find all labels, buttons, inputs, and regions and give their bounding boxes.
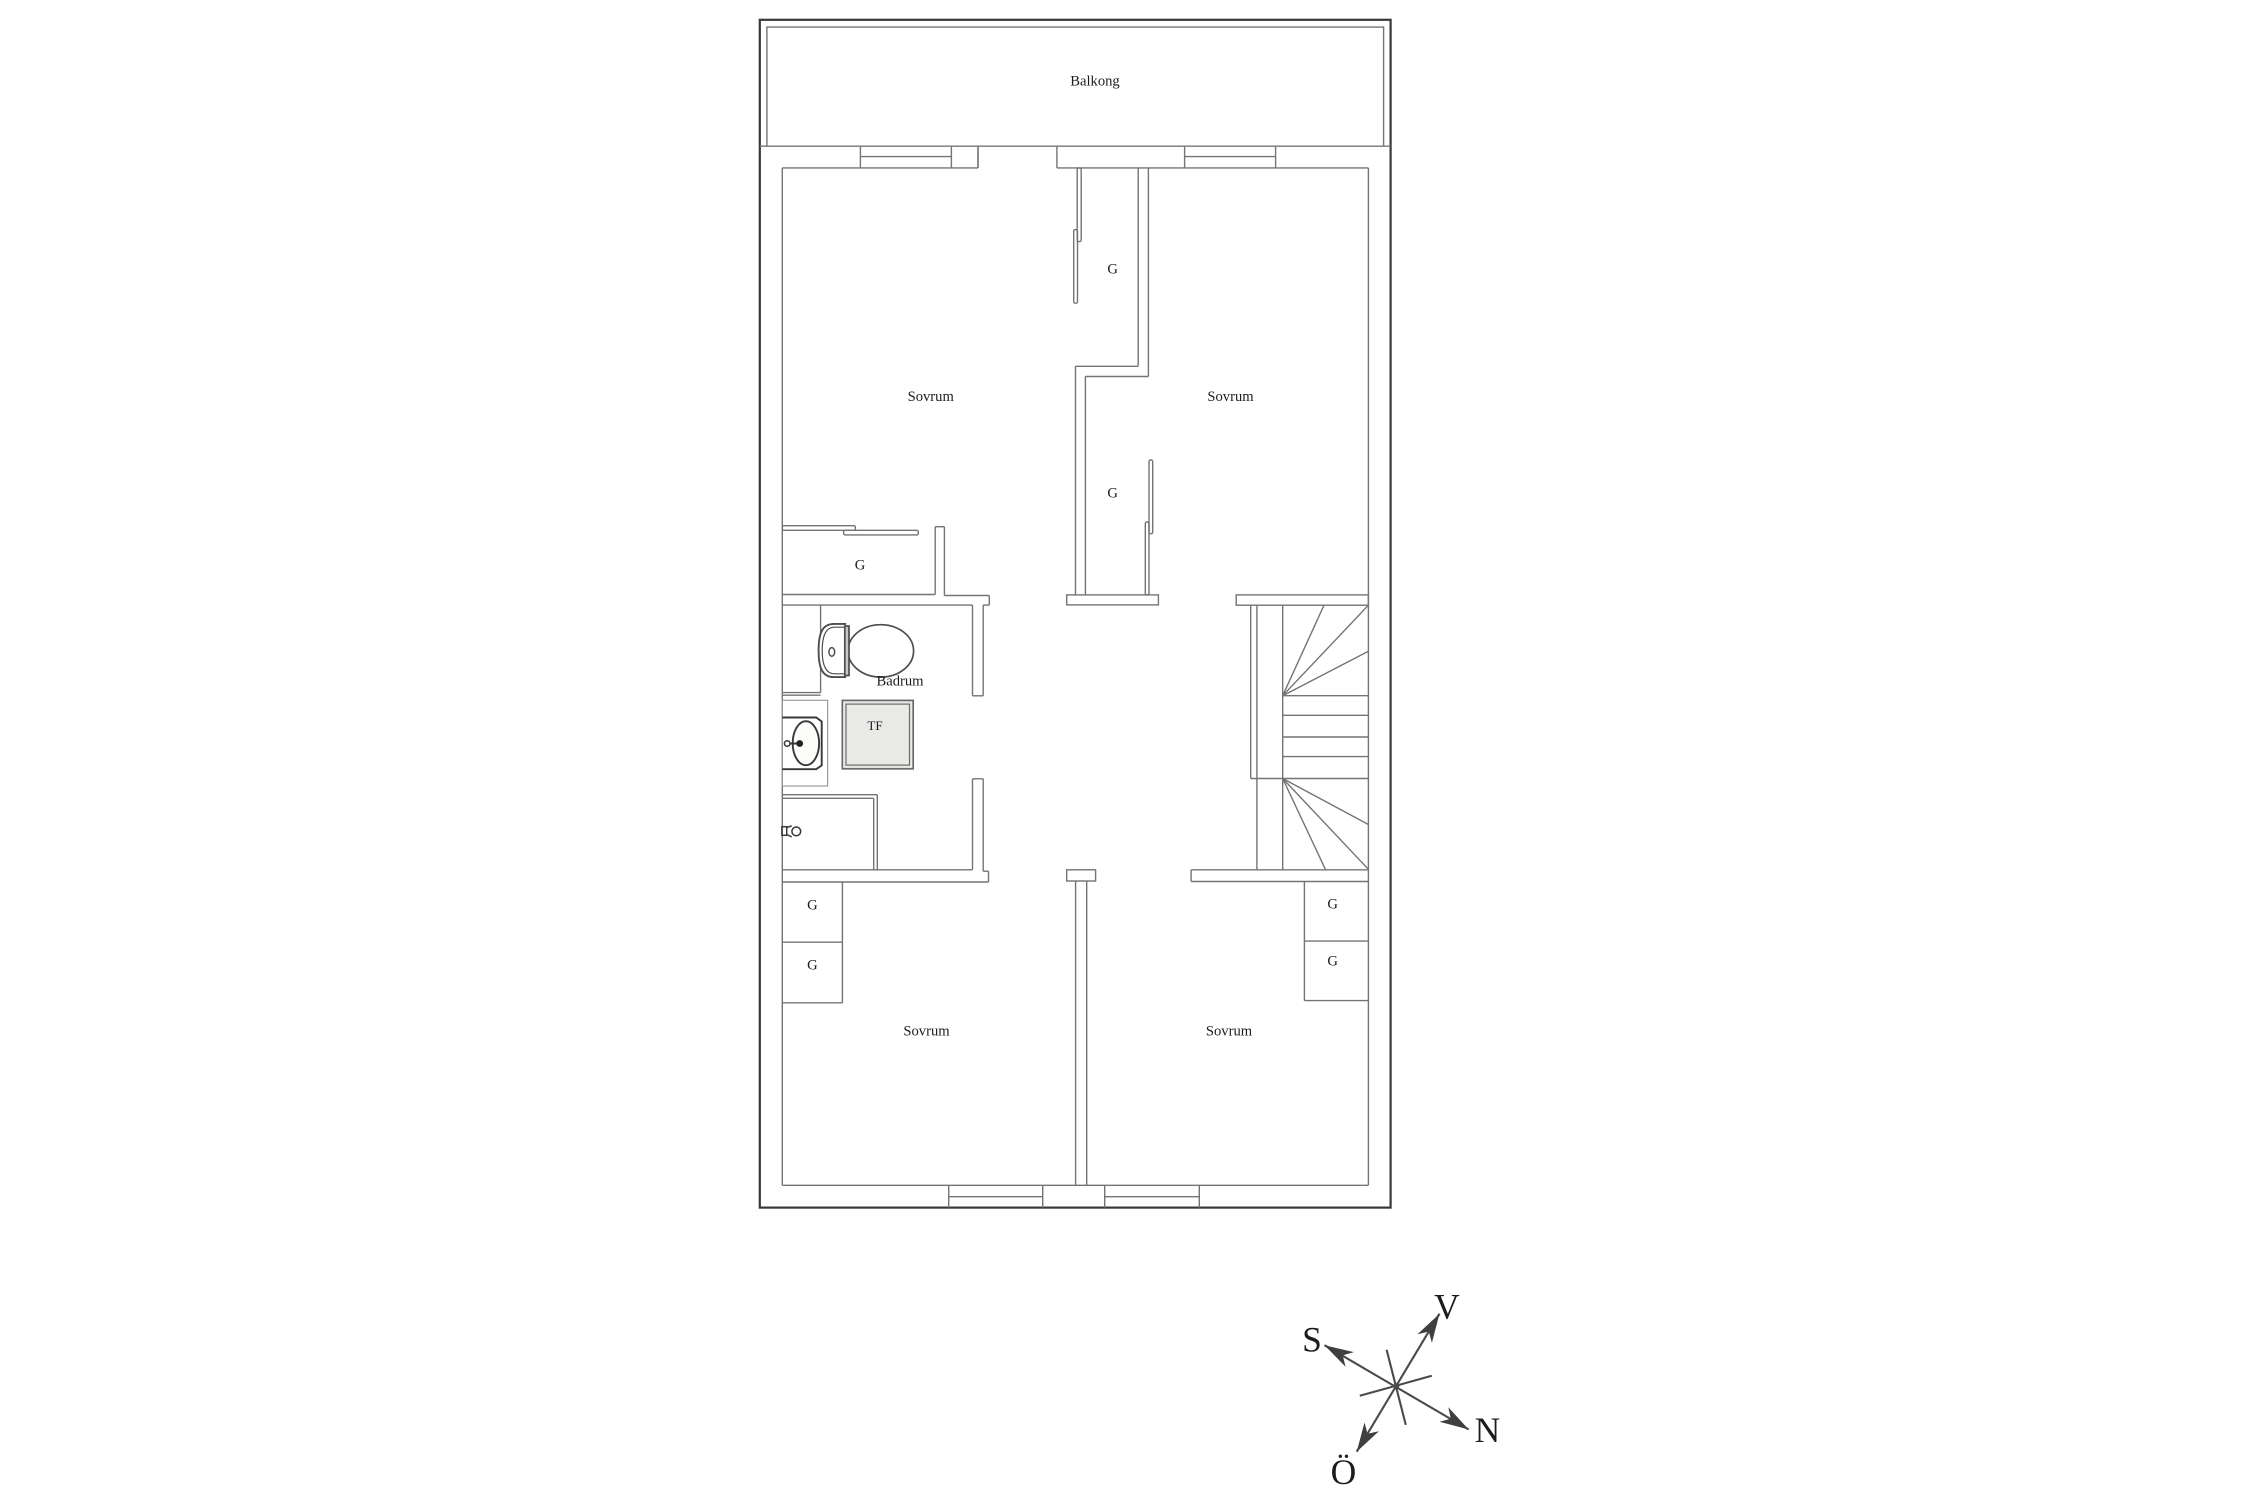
svg-text:TF: TF — [867, 718, 882, 733]
svg-text:G: G — [807, 957, 818, 973]
svg-text:G: G — [807, 897, 818, 913]
svg-text:G: G — [1327, 897, 1338, 913]
svg-text:G: G — [1107, 261, 1118, 277]
svg-text:Ö: Ö — [1331, 1452, 1357, 1492]
svg-text:V: V — [1434, 1286, 1460, 1326]
svg-text:Badrum: Badrum — [876, 673, 924, 689]
svg-text:Sovrum: Sovrum — [1206, 1024, 1253, 1040]
svg-text:Sovrum: Sovrum — [908, 389, 955, 405]
svg-text:G: G — [1107, 486, 1118, 502]
svg-text:N: N — [1475, 1410, 1501, 1450]
svg-text:Balkong: Balkong — [1070, 74, 1120, 90]
svg-text:Sovrum: Sovrum — [903, 1024, 950, 1040]
svg-text:S: S — [1302, 1320, 1322, 1360]
svg-text:Sovrum: Sovrum — [1207, 389, 1254, 405]
svg-text:G: G — [855, 558, 866, 574]
svg-text:G: G — [1327, 953, 1338, 969]
